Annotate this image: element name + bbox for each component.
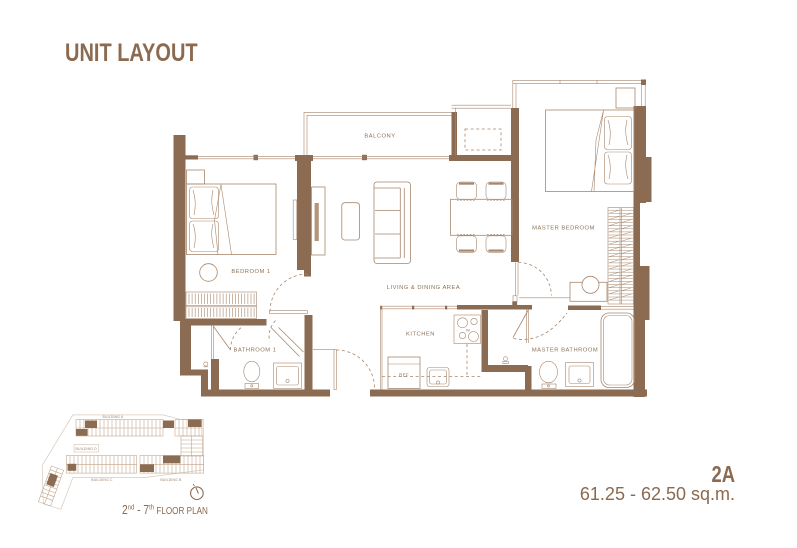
svg-text:W: W: [466, 328, 470, 333]
svg-text:BUILDING C: BUILDING C: [91, 478, 113, 482]
svg-text:BUILDING D: BUILDING D: [75, 447, 97, 451]
svg-text:BUILDING B: BUILDING B: [160, 478, 182, 482]
svg-text:LIVING & DINING AREA: LIVING & DINING AREA: [387, 285, 460, 291]
svg-text:REF: REF: [399, 373, 409, 378]
svg-text:MASTER BEDROOM: MASTER BEDROOM: [532, 226, 595, 232]
svg-text:BALCONY: BALCONY: [364, 134, 395, 140]
svg-text:BEDROOM 1: BEDROOM 1: [231, 269, 270, 275]
svg-text:BUILDING A: BUILDING A: [102, 415, 124, 419]
svg-text:KITCHEN: KITCHEN: [406, 332, 435, 338]
svg-text:MASTER BATHROOM: MASTER BATHROOM: [532, 348, 598, 354]
svg-text:BATHROOM 1: BATHROOM 1: [234, 348, 277, 354]
